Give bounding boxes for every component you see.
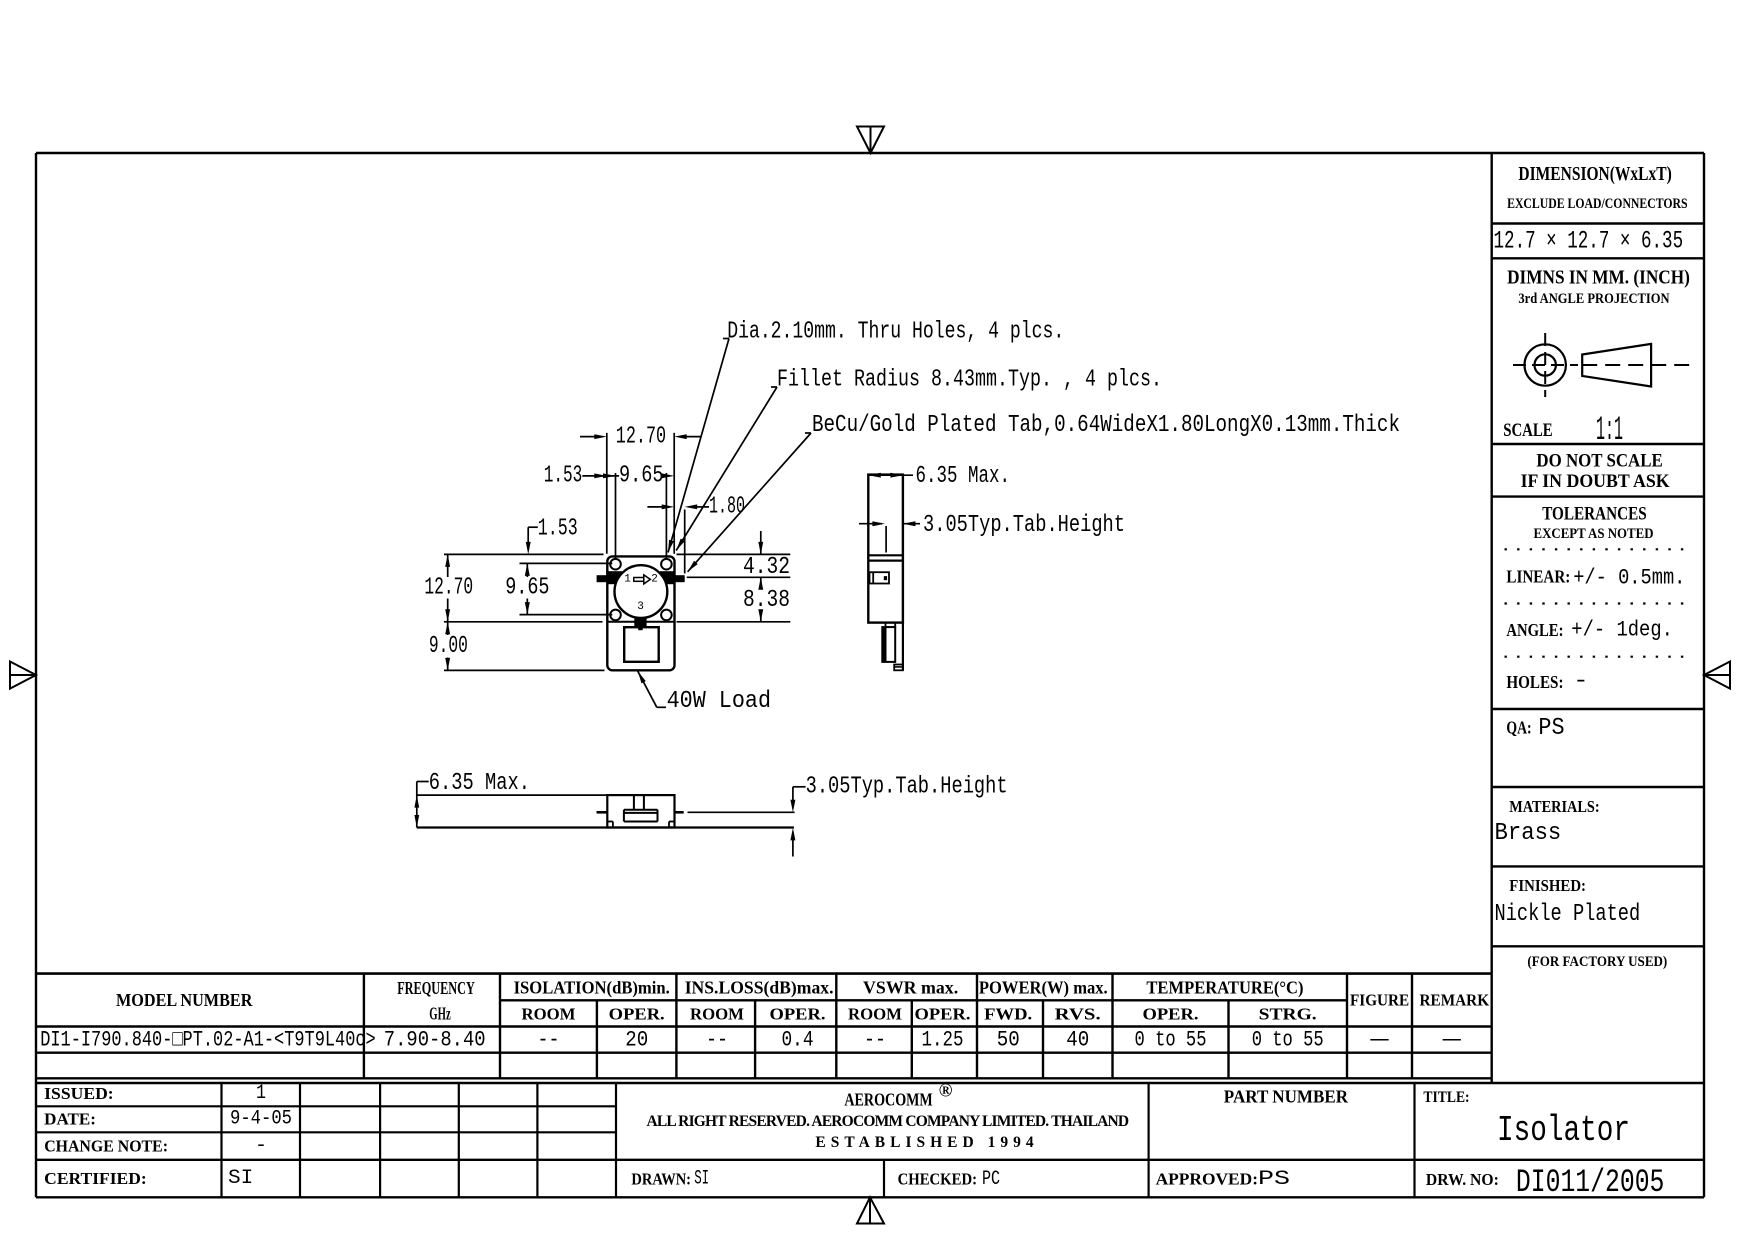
svg-text:TEMPERATURE(°C): TEMPERATURE(°C): [1146, 978, 1303, 999]
svg-text:(FOR FACTORY USED): (FOR FACTORY USED): [1527, 954, 1667, 970]
svg-text:ALL RIGHT RESERVED. AEROCOM: ALL RIGHT RESERVED. AEROCOMM COMPANY LIM…: [647, 1113, 1130, 1130]
svg-text:CHECKED:: CHECKED:: [898, 1169, 977, 1188]
svg-text:40W Load: 40W Load: [667, 688, 771, 715]
svg-text:9-4-05: 9-4-05: [230, 1108, 292, 1131]
svg-text:ESTABLISHED 1994: ESTABLISHED 1994: [815, 1134, 1033, 1151]
svg-text:ROOM: ROOM: [690, 1005, 744, 1024]
svg-text:FWD.: FWD.: [984, 1005, 1032, 1024]
svg-text:SI: SI: [228, 1167, 253, 1190]
svg-text:POWER(W) max.: POWER(W) max.: [979, 978, 1108, 999]
svg-text:1.25: 1.25: [922, 1028, 964, 1053]
svg-text:EXCLUDE LOAD/CONNECTORS: EXCLUDE LOAD/CONNECTORS: [1507, 196, 1688, 212]
svg-text:+/- 1deg.: +/- 1deg.: [1571, 618, 1673, 643]
svg-text:1.80: 1.80: [709, 493, 745, 520]
svg-text:HOLES:: HOLES:: [1506, 672, 1563, 692]
svg-text:12.70: 12.70: [616, 424, 666, 451]
svg-text:PS: PS: [1258, 1168, 1290, 1191]
svg-text:DI011/2005: DI011/2005: [1516, 1164, 1665, 1201]
svg-text:12.70: 12.70: [424, 575, 473, 602]
svg-text:--: --: [864, 1028, 886, 1053]
svg-text:DATE:: DATE:: [44, 1110, 96, 1129]
svg-text:IF IN DOUBT ASK: IF IN DOUBT ASK: [1521, 471, 1670, 492]
svg-text:CERTIFIED:: CERTIFIED:: [44, 1169, 147, 1188]
svg-text:--: --: [538, 1028, 560, 1053]
svg-text:Fillet Radius 8.43mm.Typ. ,: Fillet Radius 8.43mm.Typ. , 4 plcs.: [777, 366, 1162, 393]
svg-text:+/- 0.5mm.: +/- 0.5mm.: [1573, 566, 1685, 591]
svg-text:OPER.: OPER.: [609, 1005, 665, 1024]
svg-text:--: --: [706, 1028, 728, 1053]
svg-text:0 to 55: 0 to 55: [1135, 1028, 1207, 1053]
svg-text:OPER.: OPER.: [1143, 1005, 1199, 1024]
svg-text:ANGLE:: ANGLE:: [1506, 620, 1563, 640]
svg-text:8.38: 8.38: [743, 587, 790, 614]
svg-text:SI: SI: [694, 1167, 709, 1190]
svg-text:DRW. NO:: DRW. NO:: [1426, 1170, 1499, 1189]
svg-text:50: 50: [997, 1028, 1020, 1053]
svg-text:ROOM: ROOM: [522, 1005, 576, 1024]
svg-text:Isolator: Isolator: [1497, 1110, 1630, 1151]
svg-text:OPER.: OPER.: [770, 1005, 826, 1024]
svg-text:FINISHED:: FINISHED:: [1509, 876, 1586, 895]
svg-text:FREQUENCY: FREQUENCY: [397, 978, 475, 998]
svg-text:7.90-8.40: 7.90-8.40: [384, 1028, 486, 1053]
svg-text:DIMENSION(WxLxT): DIMENSION(WxLxT): [1518, 163, 1671, 185]
svg-text:2: 2: [651, 573, 658, 585]
svg-text:40: 40: [1066, 1028, 1089, 1053]
svg-text:12.7 × 12.7 × 6.35: 12.7 × 12.7 × 6.35: [1494, 227, 1684, 256]
svg-text:3rd ANGLE PROJECTION: 3rd ANGLE PROJECTION: [1518, 291, 1669, 307]
svg-text:PS: PS: [1538, 715, 1564, 742]
svg-text:DIMNS IN MM. (INCH): DIMNS IN MM. (INCH): [1507, 267, 1690, 289]
svg-text:DO NOT SCALE: DO NOT SCALE: [1536, 451, 1662, 472]
svg-text:REMARK: REMARK: [1420, 991, 1490, 1010]
svg-text:APPROVED:: APPROVED:: [1156, 1169, 1258, 1188]
svg-text:3.05Typ.Tab.Height: 3.05Typ.Tab.Height: [806, 774, 1008, 801]
svg-text:LINEAR:: LINEAR:: [1506, 566, 1570, 586]
svg-text:CHANGE NOTE:: CHANGE NOTE:: [44, 1137, 168, 1156]
svg-text:PC: PC: [982, 1168, 1000, 1191]
svg-text:-: -: [255, 1135, 267, 1158]
svg-text:DI1-I790.840-□PT.02-A1-<T9T9L4: DI1-I790.840-□PT.02-A1-<T9T9L40c>: [40, 1028, 376, 1053]
svg-text:3.05Typ.Tab.Height: 3.05Typ.Tab.Height: [923, 512, 1125, 539]
svg-text:FIGURE: FIGURE: [1350, 991, 1409, 1010]
svg-text:Dia.2.10mm. Thru Holes, 4: Dia.2.10mm. Thru Holes, 4 plcs.: [727, 318, 1064, 345]
svg-text:PART NUMBER: PART NUMBER: [1224, 1087, 1349, 1107]
svg-text:EXCEPT AS NOTED: EXCEPT AS NOTED: [1534, 526, 1654, 542]
svg-text:—: —: [1441, 1028, 1461, 1053]
svg-text:1: 1: [256, 1082, 266, 1105]
svg-text:3: 3: [637, 601, 644, 613]
svg-text:6.35 Max.: 6.35 Max.: [916, 463, 1011, 490]
svg-text:TITLE:: TITLE:: [1423, 1089, 1469, 1106]
svg-text:STRG.: STRG.: [1259, 1005, 1317, 1024]
svg-text:0 to 55: 0 to 55: [1252, 1028, 1324, 1053]
svg-text:®: ®: [939, 1081, 953, 1102]
svg-text:AEROCOMM: AEROCOMM: [844, 1089, 932, 1109]
svg-text:INS.LOSS(dB)max.: INS.LOSS(dB)max.: [685, 978, 834, 999]
svg-text:0.4: 0.4: [782, 1028, 814, 1053]
svg-text:DRAWN:: DRAWN:: [631, 1169, 691, 1188]
svg-text:BeCu/Gold Plated Tab,0.64Wid: BeCu/Gold Plated Tab,0.64WideX1.80LongX0…: [812, 412, 1400, 439]
svg-text:SCALE: SCALE: [1503, 420, 1553, 441]
svg-text:Brass: Brass: [1495, 820, 1562, 847]
svg-text:1.53: 1.53: [544, 462, 583, 489]
svg-text:TOLERANCES: TOLERANCES: [1542, 504, 1647, 525]
svg-text:6.35 Max.: 6.35 Max.: [429, 770, 530, 797]
svg-text:ISSUED:: ISSUED:: [44, 1084, 114, 1103]
svg-text:OPER.: OPER.: [915, 1005, 971, 1024]
svg-text:9.65: 9.65: [505, 575, 549, 602]
svg-text:MODEL NUMBER: MODEL NUMBER: [116, 990, 253, 1010]
svg-text:4.32: 4.32: [743, 554, 790, 581]
svg-text:VSWR max.: VSWR max.: [863, 978, 958, 998]
svg-text:RVS.: RVS.: [1055, 1005, 1101, 1024]
svg-text:Nickle Plated: Nickle Plated: [1495, 901, 1641, 928]
svg-text:ISOLATION(dB)min.: ISOLATION(dB)min.: [514, 978, 670, 999]
svg-text:1.53: 1.53: [538, 516, 578, 543]
svg-text:GHz: GHz: [429, 1004, 450, 1024]
svg-text:QA:: QA:: [1506, 718, 1531, 738]
svg-text:—: —: [1369, 1028, 1389, 1053]
svg-text:9.65: 9.65: [619, 462, 664, 489]
svg-text:1:1: 1:1: [1596, 412, 1623, 450]
svg-text:ROOM: ROOM: [848, 1005, 902, 1024]
svg-text:MATERIALS:: MATERIALS:: [1509, 797, 1599, 816]
svg-text:1: 1: [624, 573, 631, 585]
svg-text:-: -: [1573, 669, 1589, 694]
svg-text:9.00: 9.00: [429, 633, 468, 660]
svg-text:20: 20: [625, 1028, 648, 1053]
